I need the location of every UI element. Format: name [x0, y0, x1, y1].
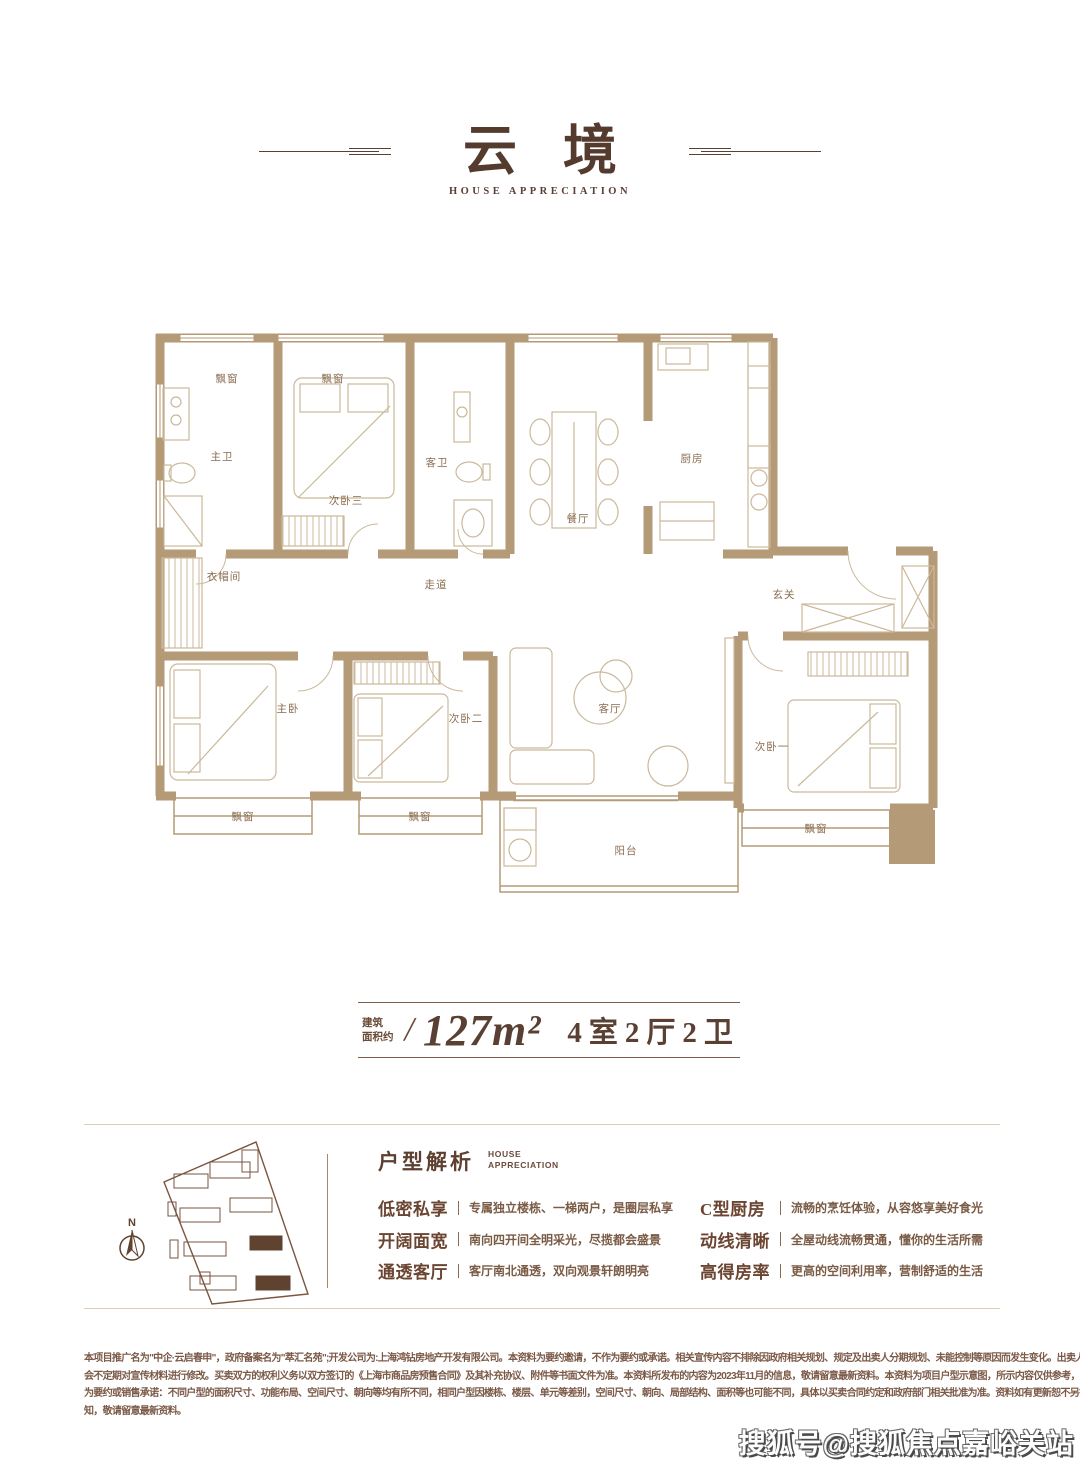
feature-item: 开阔面宽 南向四开间全明采光，尽揽都会盛景	[378, 1224, 700, 1256]
area-prefix: 建筑 面积约	[362, 1016, 394, 1044]
feature-term: 开阔面宽	[378, 1227, 450, 1252]
room-label: 客厅	[599, 702, 622, 715]
feature-desc: 全屋动线流畅贯通，懂你的生活所需	[791, 1231, 983, 1248]
room-label: 客卫	[426, 456, 449, 469]
analysis-heading-en: HOUSE APPRECIATION	[488, 1149, 559, 1170]
feature-list: 低密私享 专属独立楼栋、一梯两户，是圈层私享 C型厨房 流畅的烹饪体验，从容悠享…	[378, 1192, 983, 1287]
feature-separator	[458, 1232, 459, 1246]
room-label: 飘窗	[805, 822, 828, 835]
page-title: 云境	[417, 122, 663, 181]
room-label: 走道	[425, 578, 448, 591]
bed-icon	[170, 664, 276, 780]
title-ornament-left-icon	[259, 145, 391, 159]
header: 云境 HOUSE APPRECIATION	[0, 122, 1080, 197]
toilet-icon	[456, 462, 490, 482]
bed-icon	[354, 694, 448, 782]
feature-separator	[458, 1201, 459, 1215]
room-label: 玄关	[773, 588, 796, 601]
stove-icon	[751, 494, 767, 510]
wardrobe-icon	[162, 558, 202, 648]
feature-term: 动线清晰	[700, 1227, 772, 1252]
dining-table-icon	[530, 412, 618, 528]
feature-separator	[780, 1201, 781, 1215]
hairline-top	[84, 1124, 1000, 1125]
page-subtitle: HOUSE APPRECIATION	[0, 186, 1080, 197]
slash-divider: /	[405, 1011, 414, 1049]
room-label: 次卧二	[449, 712, 484, 725]
stove-icon	[751, 470, 767, 486]
feature-item: 高得房率 更高的空间利用率，营制舒适的生活	[700, 1255, 983, 1287]
room-label: 主卧	[277, 702, 300, 715]
feature-separator	[458, 1264, 459, 1278]
feature-item: 动线清晰 全屋动线流畅贯通，懂你的生活所需	[700, 1224, 983, 1256]
vanity-icon	[163, 388, 189, 440]
wall-block	[889, 810, 935, 864]
toilet-icon	[164, 463, 195, 483]
bay-window-icons	[174, 798, 890, 846]
room-label: 主卫	[211, 451, 234, 463]
analysis-heading: 户型解析 HOUSE APPRECIATION	[378, 1146, 559, 1176]
area-value: 127m²	[423, 1005, 541, 1056]
tv-cabinet-icon	[725, 638, 734, 783]
room-label: 餐厅	[567, 512, 590, 525]
wardrobe-icon	[808, 652, 908, 676]
room-label: 衣帽间	[207, 570, 242, 583]
floor-plan: 飘窗 飘窗 主卫 次卧三 客卫 餐厅 厨房 衣帽间 走道 玄关 主卧 次卧二 客…	[148, 326, 946, 906]
analysis-heading-cn: 户型解析	[378, 1146, 474, 1176]
feature-desc: 专属独立楼栋、一梯两户，是圈层私享	[469, 1199, 673, 1216]
site-buildings-highlighted	[250, 1236, 290, 1290]
site-buildings	[168, 1150, 272, 1290]
room-label: 阳台	[615, 844, 638, 857]
hairline-bottom	[84, 1308, 1000, 1309]
feature-desc: 流畅的烹饪体验，从容悠享美好食光	[791, 1199, 983, 1216]
feature-term: 通透客厅	[378, 1258, 450, 1283]
feature-item: 通透客厅 客厅南北通透，双向观景轩朗明亮	[378, 1255, 700, 1287]
watermark: 搜狐号@搜狐焦点嘉峪关站	[739, 1422, 1074, 1461]
wardrobe-icon	[354, 662, 440, 684]
feature-item: C型厨房 流畅的烹饪体验，从容悠享美好食光	[700, 1192, 983, 1224]
site-plan: N	[112, 1126, 312, 1306]
room-label: 厨房	[681, 452, 704, 465]
room-label: 飘窗	[322, 372, 345, 385]
room-label: 飘窗	[232, 810, 255, 823]
brochure-page: 云境 HOUSE APPRECIATION	[0, 0, 1080, 1467]
feature-separator	[780, 1232, 781, 1246]
walls	[156, 334, 933, 808]
washing-machine-icon	[504, 808, 536, 866]
feature-item: 低密私享 专属独立楼栋、一梯两户，是圈层私享	[378, 1192, 700, 1224]
feature-term: 低密私享	[378, 1195, 450, 1220]
layout-spec: 4室2厅2卫	[567, 1009, 740, 1051]
cabinet-icon	[802, 604, 894, 632]
room-label: 飘窗	[409, 810, 432, 823]
feature-separator	[780, 1264, 781, 1278]
bed-icon	[294, 378, 394, 498]
disclaimer-line: 本项目推广名为"中企·云启春申"，政府备案名为"萃汇名苑";开发公司为:上海鸿钻…	[84, 1350, 1000, 1368]
feature-term: C型厨房	[700, 1195, 772, 1220]
room-label: 飘窗	[216, 372, 239, 385]
disclaimer-line: 知，敬请留意最新资料。	[84, 1403, 1000, 1421]
room-label: 次卧三	[329, 494, 364, 507]
dresser-icon	[282, 516, 344, 546]
room-label: 次卧一	[755, 740, 790, 753]
feature-desc: 更高的空间利用率，营制舒适的生活	[791, 1262, 983, 1279]
section-divider	[327, 1154, 328, 1288]
kitchen-counter-icon	[658, 342, 770, 547]
disclaimer-line: 为要约或销售承诺：不同户型的面积尺寸、功能布局、空间尺寸、朝向等均有所不同，相同…	[84, 1385, 1000, 1403]
basin-icon	[454, 392, 470, 442]
bed-icon	[788, 700, 900, 792]
svg-text:N: N	[128, 1217, 136, 1229]
shower-icon	[164, 496, 202, 546]
feature-desc: 南向四开间全明采光，尽揽都会盛景	[469, 1231, 661, 1248]
area-band: 建筑 面积约 / 127m² 4室2厅2卫	[358, 1002, 740, 1058]
disclaimer-text: 本项目推广名为"中企·云启春申"，政府备案名为"萃汇名苑";开发公司为:上海鸿钻…	[84, 1350, 1000, 1420]
feature-term: 高得房率	[700, 1258, 772, 1283]
lounge-chair-icon	[648, 746, 688, 786]
north-compass-icon: N	[120, 1217, 144, 1260]
disclaimer-line: 会不定期对宣传材料进行修改。买卖双方的权利义务以双方签订的《上海市商品房预售合同…	[84, 1368, 1000, 1386]
feature-desc: 客厅南北通透，双向观景轩朗明亮	[469, 1262, 649, 1279]
title-ornament-right-icon	[689, 145, 821, 159]
